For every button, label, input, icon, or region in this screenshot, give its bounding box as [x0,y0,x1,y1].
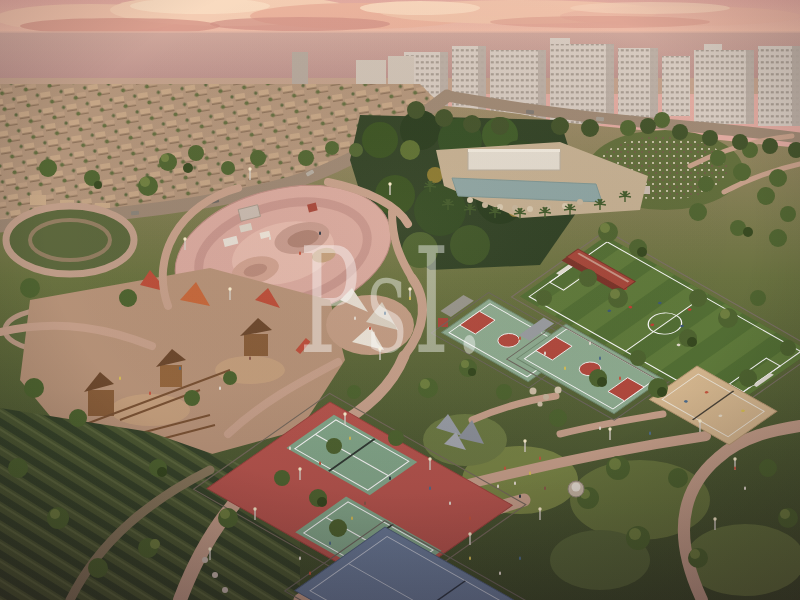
watermark-letter-s: S [366,259,410,376]
watermark-period: . [455,216,485,387]
rendering-canvas: P S I . [0,0,800,600]
watermark-letter-i: I [414,216,451,387]
park-rendering: P S I . [0,0,800,600]
watermark-letter-p: P [299,216,361,387]
